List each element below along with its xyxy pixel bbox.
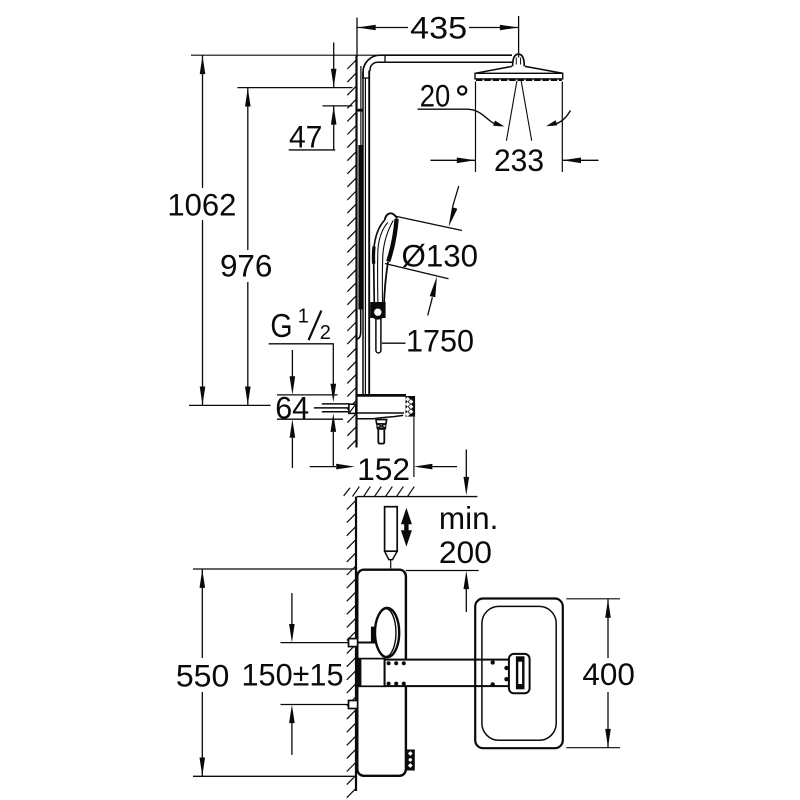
svg-text:400: 400 — [582, 656, 635, 692]
svg-text:233: 233 — [494, 142, 544, 178]
svg-text:550: 550 — [176, 657, 230, 693]
svg-text:min.: min. — [439, 500, 499, 536]
svg-text:435: 435 — [410, 10, 467, 46]
svg-text:1062: 1062 — [167, 186, 236, 222]
svg-text:1750: 1750 — [406, 322, 474, 358]
svg-text:20: 20 — [420, 78, 451, 114]
svg-text:200: 200 — [439, 534, 492, 570]
svg-text:152: 152 — [357, 451, 410, 487]
svg-text:47: 47 — [289, 119, 323, 155]
svg-text:2: 2 — [320, 322, 331, 344]
svg-text:1: 1 — [298, 305, 309, 327]
svg-text:Ø130: Ø130 — [402, 238, 479, 274]
svg-text:150±15: 150±15 — [242, 657, 344, 693]
svg-text:G: G — [270, 308, 292, 345]
svg-text:976: 976 — [220, 247, 273, 283]
svg-text:64: 64 — [275, 390, 309, 426]
